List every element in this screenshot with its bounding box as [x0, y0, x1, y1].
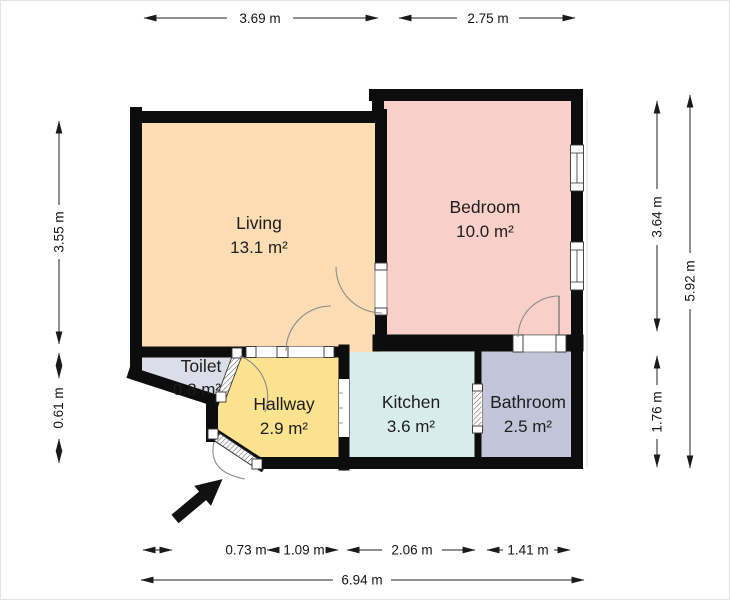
door-kitchen-bathroom [473, 384, 483, 433]
room-area-hallway: 2.9 m² [260, 419, 309, 438]
dim-label-bottom-4: 1.41 m [507, 543, 548, 558]
room-label-kitchen: Kitchen [382, 392, 440, 412]
floorplan-svg: Living 13.1 m² Bedroom 10.0 m² Toilet 0.… [1, 1, 730, 601]
dim-label-top-bedroom: 2.75 m [467, 11, 508, 26]
room-label-bedroom: Bedroom [449, 197, 520, 217]
room-label-living: Living [236, 213, 282, 233]
room-area-kitchen: 3.6 m² [387, 417, 436, 436]
dim-label-bottom-3: 2.06 m [391, 543, 432, 558]
room-label-toilet: Toilet [181, 356, 222, 376]
dim-label-bottom-total: 6.94 m [341, 573, 382, 588]
room-label-hallway: Hallway [253, 394, 315, 414]
dim-label-right-bathroom: 1.76 m [650, 391, 665, 432]
opening-hallway-kitchen [339, 379, 349, 437]
floorplan-canvas: Living 13.1 m² Bedroom 10.0 m² Toilet 0.… [0, 0, 730, 600]
entrance-arrow-icon [167, 469, 231, 529]
dim-label-left-toilet: 0.61 m [51, 387, 66, 428]
bedroom-floor [381, 95, 577, 343]
dim-label-right-bedroom: 3.64 m [650, 196, 665, 237]
dim-label-bottom-2: 1.09 m [283, 543, 324, 558]
room-label-bathroom: Bathroom [490, 392, 566, 412]
dim-label-top-living: 3.69 m [239, 11, 280, 26]
window-icon [571, 145, 584, 191]
room-area-bedroom: 10.0 m² [456, 222, 514, 241]
dim-label-left-living: 3.55 m [52, 211, 67, 252]
dim-label-bottom-1: 0.73 m [225, 543, 266, 558]
room-area-toilet: 0.8 m² [173, 380, 222, 399]
living-room-floor [136, 117, 381, 352]
dim-label-right-total: 5.92 m [683, 260, 698, 301]
room-area-living: 13.1 m² [230, 238, 288, 257]
room-area-bathroom: 2.5 m² [504, 417, 553, 436]
window-icon [571, 242, 584, 290]
